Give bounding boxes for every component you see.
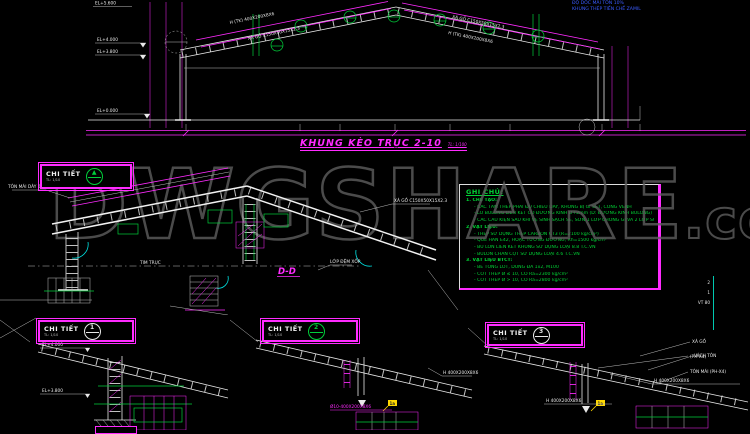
- detail1-level-top: EL+4.000: [42, 342, 63, 348]
- purlin-ladder-bottom: [185, 276, 225, 310]
- note-line: - LỖ BULONG LIÊN KẾT CÓ ĐƯỜNG KÍNH D+2mm…: [466, 211, 654, 218]
- stamp-scale: TL: 1/10: [268, 333, 303, 337]
- elevation-title: KHUNG KÈO TRỤC 2-10TL: 1/100: [300, 138, 467, 151]
- elevation-title-text: KHUNG KÈO TRỤC 2-10: [300, 138, 442, 149]
- note-line: - CỐT THÉP Ø ≤ 10, CÓ Ra=2300 kg/cm²: [466, 272, 654, 279]
- stamp-detail-1: CHI TIẾT TL: 1/10 1: [38, 320, 134, 342]
- rafter-chords: [52, 186, 436, 260]
- section-label: D-D: [278, 267, 296, 277]
- right-edge-marks: 2 1 VT 80: [690, 278, 710, 308]
- note-line: - BU LON LIÊN KẾT KHUNG SỬ DỤNG LOẠI 8.8…: [466, 245, 654, 252]
- stamp-detail-2: CHI TIẾT TL: 1/10 2: [262, 320, 358, 342]
- portal-frame: [88, 7, 640, 120]
- detail-2: 1a H 400X200X8X6 Ø10-400X200X8X6: [256, 340, 479, 430]
- level-apex: EL+5.600: [95, 1, 116, 7]
- level-markers: EL+5.600 EL+4.000 EL+3.800 EL+0.000: [93, 1, 150, 119]
- stamp-scale: TL: 1/10: [44, 333, 79, 337]
- note-line: - BULON CHÂN CỘT SỬ DỤNG LOẠI 4.6 T.C.VN: [466, 252, 654, 259]
- mark-3: VT 80: [690, 298, 710, 308]
- note-line: - CÁC CẤU KIỆN SAU KHI VỆ SINH SẠCH SẼ, …: [466, 218, 654, 225]
- note-line: 1. CHẾ TẠO:: [466, 198, 654, 205]
- grid-lines: [150, 2, 628, 128]
- watermark-suffix: .com: [684, 188, 750, 251]
- fold-line: [428, 270, 458, 310]
- note-line: - QUE HÀN E42, HOẶC TƯƠNG ĐƯƠNG, Rh=1500…: [466, 238, 654, 245]
- detail-3: 1a (PH-X4) H 400X200X8X6 H 400X200X8X6 X…: [484, 336, 748, 428]
- cad-canvas: { "watermark": { "text": "DWGSHARE", "su…: [0, 0, 750, 430]
- detail3-leader-1: XÀ GỒ: [692, 336, 707, 345]
- stamp-label: CHI TIẾT: [493, 330, 528, 337]
- detail3-beam-label: H 400X200X8X6: [654, 378, 690, 384]
- top-right-links: ĐỘ DỐC MÁI TÔN 10% KHUNG THÉP TIỀN CHẾ Z…: [572, 1, 641, 12]
- stamp-label: CHI TIẾT: [44, 326, 79, 333]
- detail2-plate-label: Ø10-400X200X8X6: [330, 403, 371, 410]
- stamp-scale: TL: 1/10: [493, 337, 528, 341]
- notes-box: GHI CHÚ: 1. CHẾ TẠO: - CÁC TẤM THÉP PHẢI…: [459, 184, 661, 290]
- detail-bubble-icon: 1: [84, 323, 101, 340]
- mark-2: 1: [690, 288, 710, 298]
- rev-flag-label: 1a: [598, 401, 604, 406]
- level-ground: EL+0.000: [97, 108, 118, 114]
- note-line: - CÁC TẤM THÉP PHẢI ĐỦ CHIỀU DÀY, KHÔNG …: [466, 205, 654, 212]
- axis-label: TIM TRỤC: [139, 260, 161, 266]
- stamp-scale: TL: 1/10: [46, 178, 81, 182]
- detail2-beam-label: H 400X200X8X6: [443, 370, 479, 376]
- level-eave-top: EL+4.000: [97, 37, 118, 43]
- detail-bubble-icon: 2: [308, 323, 325, 340]
- rafter-label-left: H (TK) 400X200X8X6: [229, 11, 275, 26]
- stamp-label: CHI TIẾT: [46, 171, 81, 178]
- note-line: 2. VẬT LIỆU:: [466, 225, 654, 232]
- detail1-level-bot: EL+3.800: [42, 388, 63, 394]
- dimension-lines: [86, 124, 746, 136]
- teal-reference-line: [713, 276, 714, 330]
- wall-column: [58, 232, 88, 290]
- elevation-title-scale: TL: 1/100: [448, 142, 467, 147]
- bolt-arcs: [72, 242, 372, 288]
- detail-1: EL+4.000 EL+3.800: [38, 342, 228, 430]
- stamp-label: CHI TIẾT: [268, 326, 303, 333]
- mark-1: 2: [690, 278, 710, 288]
- detail3-leader-3: TÔN MÁI (PH-X4): [689, 368, 726, 375]
- note-line: - CỐT THÉP Ø > 10, CÓ Ra=2800 kg/cm²: [466, 278, 654, 285]
- leader-pad-label: LỚP ĐỆM XỐP: [330, 257, 361, 265]
- leader-purlin-label: XÀ GỒ C150X50X15X2.3: [394, 195, 447, 204]
- level-eave-bot: EL+3.800: [97, 49, 118, 55]
- section-bubble-icon: ▲: [86, 168, 103, 185]
- ridge-ladder: [236, 198, 264, 264]
- stamp-detail-main: CHI TIẾT TL: 1/10 ▲: [40, 164, 132, 189]
- note-line: - THÉP SỬ DỤNG THÉP CARBON CT3 (R=2100 k…: [466, 232, 654, 239]
- elevation-drawing: EL+5.600 EL+4.000 EL+3.800 EL+0.000 H (T…: [0, 0, 750, 160]
- purlin-label-right: XÀ GỒ C150X50X15X2.3: [452, 11, 506, 30]
- rafter-label-right: H (TK) 400X200X8X6: [448, 30, 494, 45]
- note-line: 3. VẬT LIỆU BTCT:: [466, 258, 654, 265]
- note-line: - BÊ TÔNG LÓT, DÙNG ĐÁ 1x2, M100: [466, 265, 654, 272]
- leader-lines: XÀ GỒ C150X50X15X2.3 LỚP ĐỆM XỐP TÔN MÁI…: [7, 183, 447, 270]
- notes-title: GHI CHÚ:: [466, 188, 654, 196]
- stamp-fragment: [95, 426, 137, 434]
- detail-bubble-icon: 3: [533, 327, 550, 344]
- stamp-detail-3: CHI TIẾT TL: 1/10 3: [487, 324, 583, 346]
- top-link-2[interactable]: KHUNG THÉP TIỀN CHẾ ZAMIL: [572, 7, 641, 13]
- detail3-leader-2: VÁCH TÔN: [694, 352, 716, 359]
- detail3-beam-label2: H 400X200X8X6: [546, 398, 582, 404]
- weld-symbol: [582, 406, 590, 413]
- rev-flag-label: 1a: [390, 401, 396, 406]
